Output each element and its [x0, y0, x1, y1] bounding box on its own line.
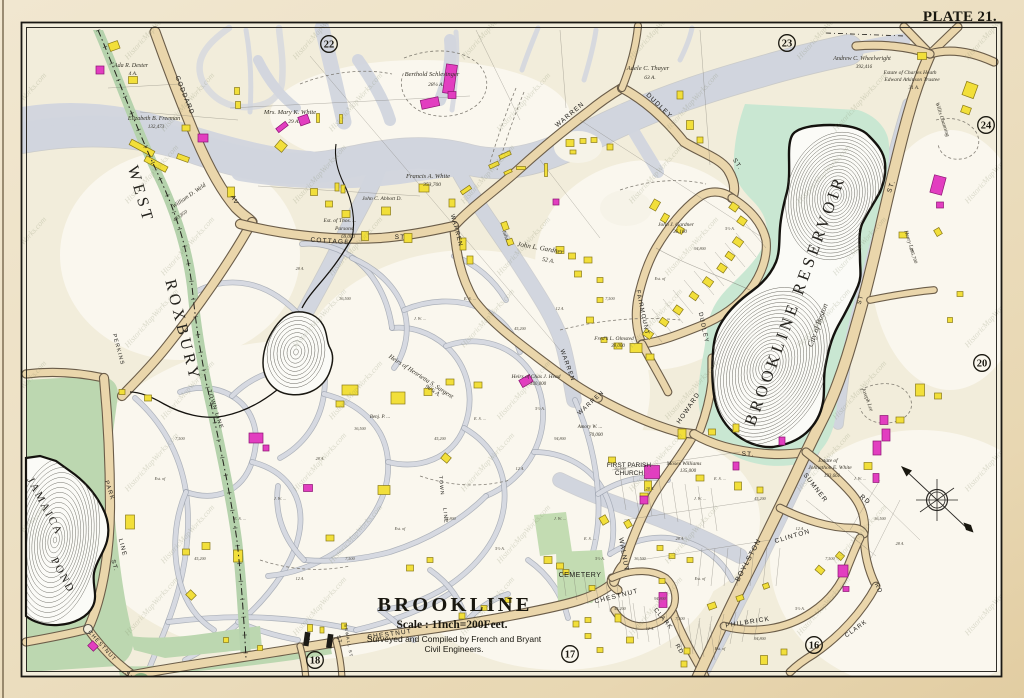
- svg-text:20: 20: [977, 359, 988, 370]
- svg-text:E. S. ...: E. S. ...: [583, 536, 596, 541]
- svg-text:Mrs. Mary K. White: Mrs. Mary K. White: [263, 109, 316, 116]
- svg-text:392,416: 392,416: [856, 65, 873, 70]
- svg-text:Adele C. Thayer: Adele C. Thayer: [626, 65, 670, 72]
- svg-text:E. S. ...: E. S. ...: [713, 476, 726, 481]
- svg-text:Surveyed and Compiled by F: Surveyed and Compiled by French and Brya…: [367, 634, 542, 644]
- svg-text:Berthold Schlesinger: Berthold Schlesinger: [405, 71, 460, 78]
- svg-text:Est. of: Est. of: [654, 276, 667, 281]
- svg-text:12 A.: 12 A.: [516, 466, 525, 471]
- svg-text:Civil Engineers.: Civil Engineers.: [424, 644, 483, 654]
- svg-text:22: 22: [324, 40, 335, 51]
- svg-text:E. S. ...: E. S. ...: [463, 296, 476, 301]
- svg-text:Est. of Thos. ...: Est. of Thos. ...: [322, 217, 356, 224]
- svg-text:5½ A.: 5½ A.: [535, 406, 545, 411]
- svg-text:12 A.: 12 A.: [556, 306, 565, 311]
- svg-text:J. W. ...: J. W. ...: [414, 316, 426, 321]
- svg-text:E. S. ...: E. S. ...: [473, 416, 486, 421]
- svg-text:CEMETERY: CEMETERY: [559, 572, 602, 579]
- svg-text:HistoricMapWorks.com: HistoricMapWorks.com: [0, 431, 12, 494]
- svg-text:17: 17: [565, 650, 576, 661]
- svg-text:16: 16: [809, 641, 820, 652]
- svg-text:J. W. ...: J. W. ...: [694, 496, 706, 501]
- svg-text:24: 24: [981, 121, 992, 132]
- svg-text:Parsons: Parsons: [334, 226, 353, 232]
- svg-text:E. S. ...: E. S. ...: [233, 516, 246, 521]
- svg-text:Est. of: Est. of: [154, 476, 167, 481]
- svg-text:36,100: 36,100: [673, 230, 687, 235]
- svg-text:HistoricMapWorks.com: HistoricMapWorks.com: [0, 0, 12, 62]
- svg-text:23: 23: [782, 39, 793, 50]
- svg-text:J. W. ...: J. W. ...: [554, 516, 566, 521]
- svg-text:J. W. ...: J. W. ...: [274, 496, 286, 501]
- svg-text:Moses Williams: Moses Williams: [666, 461, 702, 467]
- svg-text:29 A.: 29 A.: [288, 119, 300, 125]
- svg-text:18: 18: [310, 656, 321, 667]
- svg-text:5½ A.: 5½ A.: [795, 606, 805, 611]
- svg-text:J. W. ...: J. W. ...: [854, 476, 866, 481]
- svg-text:Andrew C. Wheelwright: Andrew C. Wheelwright: [832, 56, 891, 62]
- svg-text:353,700: 353,700: [422, 182, 441, 188]
- svg-text:12 A.: 12 A.: [296, 576, 305, 581]
- svg-text:28 A.: 28 A.: [296, 266, 305, 271]
- svg-text:Est. of: Est. of: [694, 576, 707, 581]
- svg-text:5½ A.: 5½ A.: [595, 556, 605, 561]
- svg-text:31 A.: 31 A.: [909, 86, 919, 91]
- svg-text:Francis A. White: Francis A. White: [405, 173, 450, 180]
- svg-text:Ada R. Dexter: Ada R. Dexter: [113, 63, 149, 69]
- svg-text:BROOKLINE: BROOKLINE: [377, 594, 532, 616]
- svg-text:Benj. P. ...: Benj. P. ...: [370, 415, 390, 420]
- svg-text:John C. Abbott D.: John C. Abbott D.: [362, 196, 402, 202]
- svg-text:Est. of: Est. of: [714, 646, 727, 651]
- svg-text:Est. of: Est. of: [394, 526, 407, 531]
- svg-text:28 A.: 28 A.: [646, 486, 655, 491]
- svg-text:69,000: 69,000: [341, 235, 355, 240]
- svg-text:HistoricMapWorks.com: HistoricMapWorks.com: [0, 143, 12, 206]
- svg-text:Estate of Charles Heath: Estate of Charles Heath: [882, 69, 936, 76]
- svg-text:4 A.: 4 A.: [129, 70, 138, 77]
- svg-text:28 A.: 28 A.: [896, 541, 905, 546]
- svg-text:ST.: ST.: [741, 451, 754, 459]
- svg-text:193,661: 193,661: [824, 474, 840, 479]
- svg-text:Scale : 1Inch=200Feet.: Scale : 1Inch=200Feet.: [397, 619, 508, 631]
- svg-text:135,000: 135,000: [680, 469, 697, 474]
- svg-text:HistoricMapWorks.com: HistoricMapWorks.com: [0, 575, 12, 638]
- svg-text:12 A.: 12 A.: [796, 526, 805, 531]
- svg-text:12 A.: 12 A.: [646, 626, 655, 631]
- svg-text:Amory W. ...: Amory W. ...: [577, 425, 603, 430]
- svg-text:John J. Gardner: John J. Gardner: [658, 222, 695, 228]
- svg-text:5½ A.: 5½ A.: [725, 226, 735, 231]
- svg-text:Edward Atkinson Trustee: Edward Atkinson Trustee: [883, 77, 940, 83]
- svg-text:63 A.: 63 A.: [644, 75, 656, 81]
- svg-text:70,000: 70,000: [589, 433, 603, 438]
- svg-text:38,000: 38,000: [611, 344, 625, 349]
- svg-text:HistoricMapWorks.com: HistoricMapWorks.com: [0, 287, 12, 350]
- svg-text:ST: ST: [395, 234, 406, 241]
- svg-text:28¼ A.: 28¼ A.: [428, 82, 444, 88]
